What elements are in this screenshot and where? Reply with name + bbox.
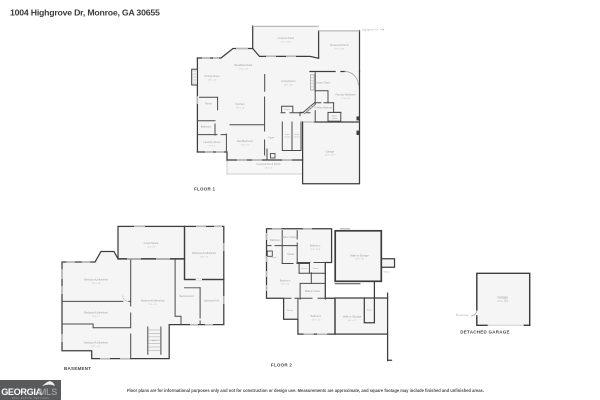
svg-text:Walk-in: Walk-in (384, 271, 392, 273)
svg-text:Closet: Closet (287, 253, 294, 256)
svg-text:13'6 x 12': 13'6 x 12' (235, 107, 245, 109)
svg-text:26'2 x 5': 26'2 x 5' (265, 167, 273, 169)
svg-text:13'6 x 25': 13'6 x 25' (148, 304, 158, 306)
svg-text:FLOOR 2: FLOOR 2 (271, 362, 292, 367)
svg-text:15'6 x 16': 15'6 x 16' (355, 259, 365, 261)
svg-text:20'1 x 10'2: 20'1 x 10'2 (281, 41, 292, 43)
svg-text:Walk-in Storage: Walk-in Storage (350, 253, 369, 257)
svg-text:GEORGIA: GEORGIA (1, 387, 42, 397)
svg-text:Crawl Space: Crawl Space (144, 241, 159, 245)
svg-text:Closet: Closet (332, 117, 338, 120)
svg-text:Laundry Room: Laundry Room (203, 140, 220, 144)
svg-text:12'6 x 15': 12'6 x 15' (199, 256, 209, 258)
svg-text:FLOOR 1: FLOOR 1 (194, 186, 215, 191)
svg-text:Pantry: Pantry (205, 102, 213, 105)
svg-text:21'6 x 7': 21'6 x 7' (92, 316, 100, 318)
svg-text:BASEMENT: BASEMENT (64, 366, 91, 371)
svg-text:Bedroom/Unfinished: Bedroom/Unfinished (84, 340, 108, 344)
svg-text:Closet: Closet (287, 309, 294, 312)
svg-text:DETACHED GARAGE: DETACHED GARAGE (460, 329, 509, 334)
svg-text:Den/Bedroom: Den/Bedroom (237, 139, 253, 143)
svg-text:Stairs: Stairs (367, 308, 372, 311)
svg-text:8'2 x 6': 8'2 x 6' (209, 145, 216, 147)
svg-text:Covered Front Porch: Covered Front Porch (257, 162, 282, 166)
svg-text:Garage: Garage (325, 149, 334, 153)
svg-text:13'6 x 12': 13'6 x 12' (207, 79, 217, 81)
svg-text:Bathroom: Bathroom (270, 239, 280, 242)
svg-text:Screened Porch: Screened Porch (330, 43, 349, 47)
svg-text:Dining Room: Dining Room (205, 74, 220, 78)
svg-text:Closet: Closet (294, 136, 300, 139)
svg-text:Floor plans are for informatio: Floor plans are for informational purpos… (127, 388, 484, 393)
svg-text:21'4 x 20'6: 21'4 x 20'6 (497, 300, 509, 303)
svg-text:Breakfast Nook: Breakfast Nook (235, 63, 253, 67)
svg-text:Garage: Garage (497, 296, 508, 300)
svg-text:Primary Bathroom: Primary Bathroom (314, 106, 333, 109)
svg-text:Bedroom/Unfinished: Bedroom/Unfinished (192, 251, 216, 255)
svg-text:Bedroom: Bedroom (311, 314, 322, 318)
svg-text:Bedroom: Bedroom (280, 278, 291, 282)
svg-text:Walk-in Closet: Walk-in Closet (305, 290, 321, 293)
svg-text:21'6 x 12': 21'6 x 12' (91, 283, 101, 285)
svg-text:Bedroom/Unfinished: Bedroom/Unfinished (84, 278, 108, 282)
svg-text:Bathroom/Unf.: Bathroom/Unf. (204, 299, 220, 302)
svg-text:12'2 x 11': 12'2 x 11' (241, 144, 250, 146)
svg-text:Stairs: Stairs (152, 339, 158, 342)
svg-text:12'2 x 11': 12'2 x 11' (311, 319, 320, 321)
svg-text:Bedroom/Unfinished: Bedroom/Unfinished (141, 298, 165, 302)
svg-text:Primary Bedroom: Primary Bedroom (336, 93, 356, 97)
svg-text:Closet: Closet (301, 267, 308, 270)
svg-text:Kitchen: Kitchen (236, 102, 245, 106)
svg-text:Primary Closet: Primary Closet (315, 81, 331, 84)
svg-text:MLS: MLS (39, 387, 57, 397)
svg-text:Highgrove Dr: Highgrove Dr (362, 28, 379, 32)
svg-text:Stairs: Stairs (284, 108, 290, 111)
svg-text:20'2 x 9'6: 20'2 x 9'6 (91, 346, 101, 348)
svg-text:11'6 x 12': 11'6 x 12' (281, 284, 290, 286)
svg-text:Bedroom/Unfinished: Bedroom/Unfinished (84, 311, 108, 315)
svg-text:13'6 x 13'4: 13'6 x 13'4 (334, 48, 345, 50)
svg-text:Foyer: Foyer (268, 136, 274, 139)
svg-text:21'6 x 9': 21'6 x 9' (147, 246, 155, 248)
svg-text:1004 Highgrove Dr, Monroe, GA: 1004 Highgrove Dr, Monroe, GA 30655 (10, 7, 160, 17)
svg-text:13'6 x 9'2: 13'6 x 9'2 (239, 68, 249, 70)
svg-text:Walk-in Storage: Walk-in Storage (343, 315, 362, 319)
svg-text:Closet: Closet (284, 136, 290, 139)
svg-text:10'6 x 11': 10'6 x 11' (348, 320, 357, 322)
svg-text:Living Room: Living Room (281, 79, 295, 83)
svg-text:Bedroom: Bedroom (310, 244, 321, 248)
svg-text:Breezeway: Breezeway (456, 314, 469, 317)
svg-text:13'2 x 11'6: 13'2 x 11'6 (310, 249, 321, 251)
svg-text:19'4 x 18': 19'4 x 18' (284, 84, 294, 86)
svg-text:15'6 x 14': 15'6 x 14' (341, 98, 351, 100)
svg-text:Bedroom/Unf.: Bedroom/Unf. (180, 295, 195, 298)
svg-text:22'4 x 21'6: 22'4 x 21'6 (325, 155, 336, 157)
svg-text:Walk-in closet: Walk-in closet (281, 236, 296, 239)
svg-text:Covered Patio: Covered Patio (277, 36, 294, 40)
svg-text:Closet: Closet (270, 256, 277, 259)
svg-text:Bathroom: Bathroom (201, 125, 211, 128)
svg-text:Linen: Linen (313, 268, 319, 270)
